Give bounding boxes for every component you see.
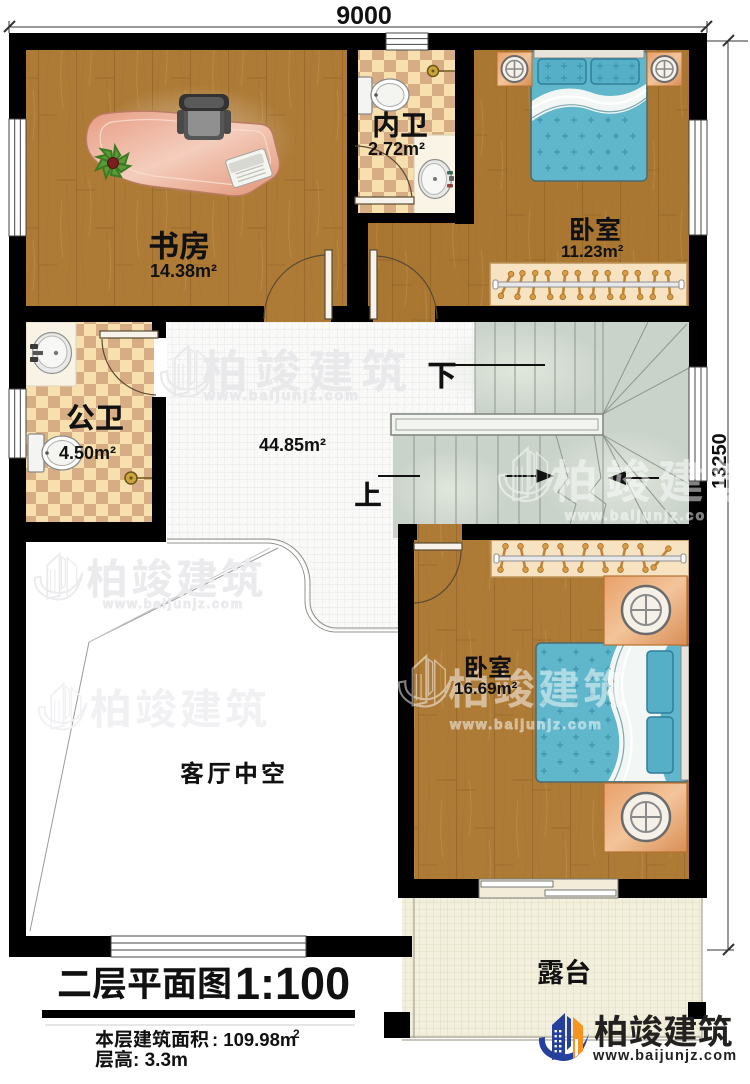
svg-text:4.50m²: 4.50m² [59, 443, 116, 463]
svg-text:44.85m²: 44.85m² [259, 435, 326, 455]
svg-text:www.baijunjz.com: www.baijunjz.com [449, 716, 603, 732]
svg-text:14.38m²: 14.38m² [150, 261, 217, 281]
svg-text:11.23m²: 11.23m² [561, 242, 624, 261]
svg-text:1:100: 1:100 [235, 958, 350, 1009]
svg-text:9000: 9000 [336, 2, 392, 30]
svg-text:www.baijunjz.com: www.baijunjz.com [102, 596, 244, 611]
svg-text:www.baijunjz.com: www.baijunjz.com [592, 1048, 737, 1064]
svg-text:2: 2 [293, 1027, 300, 1041]
svg-text:: 109.98m: : 109.98m [212, 1029, 296, 1050]
svg-text:www.baijunjz.com: www.baijunjz.com [564, 507, 721, 523]
svg-text:: 3.3m: : 3.3m [133, 1050, 188, 1071]
svg-text:16.69m²: 16.69m² [454, 679, 518, 698]
svg-text:www.baijunjz.com: www.baijunjz.com [203, 387, 360, 403]
svg-text:2.72m²: 2.72m² [368, 139, 425, 159]
